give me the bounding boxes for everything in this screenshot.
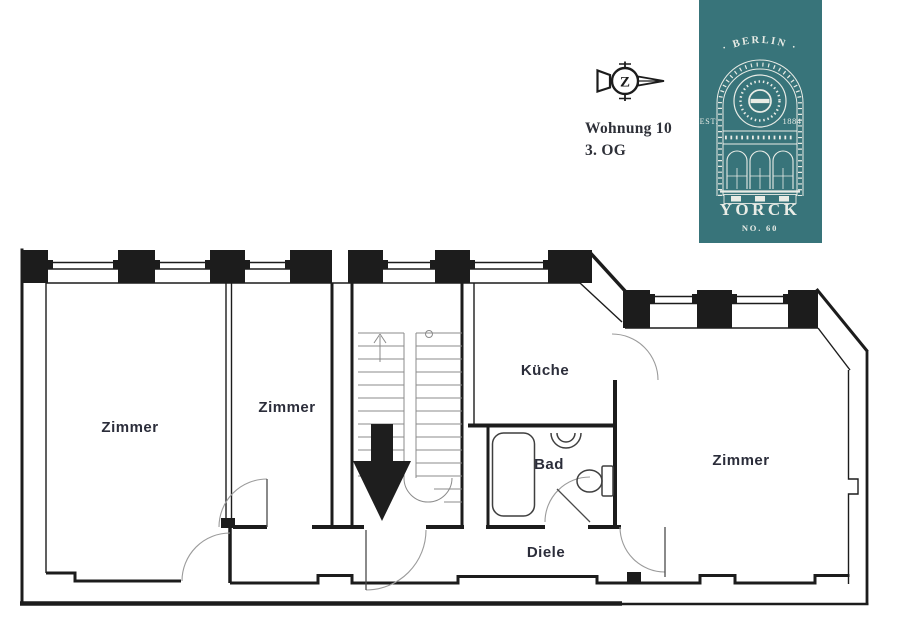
floor-label: 3. OG — [585, 142, 626, 159]
brand-badge: · BERLIN · EST. 1884 YORCK NO. 60 — [699, 0, 822, 243]
badge-year: 1884 — [783, 116, 802, 126]
floor-plan: Zimmer Zimmer Küche Bad Zimmer Diele — [20, 249, 869, 606]
down-arrow-icon — [353, 424, 411, 521]
floorplan-canvas: Z Wohnung 10 3. OG · BERLIN · — [0, 0, 900, 635]
unit-label: Wohnung 10 — [585, 120, 672, 137]
stair-turn-curve — [404, 478, 452, 502]
compass-icon: Z — [598, 62, 665, 102]
stair-up-arrow-icon — [374, 334, 386, 362]
page: Z Wohnung 10 3. OG · BERLIN · — [0, 0, 900, 635]
room-label-zimmer-right: Zimmer — [712, 452, 769, 469]
badge-name: YORCK — [720, 200, 801, 219]
room-label-zimmer-left: Zimmer — [101, 419, 158, 436]
room-label-diele: Diele — [527, 544, 565, 561]
compass-letter: Z — [620, 75, 630, 91]
bathroom-fixtures — [493, 433, 614, 516]
room-label-bad: Bad — [534, 456, 564, 473]
header-labels: Wohnung 10 3. OG — [585, 120, 672, 159]
stair-divider — [404, 333, 416, 478]
badge-number: NO. 60 — [742, 223, 778, 233]
bathtub — [493, 433, 535, 516]
door-arc-kueche — [612, 334, 658, 380]
door-stop-nub — [627, 572, 641, 583]
sink — [551, 433, 581, 448]
room-label-kueche: Küche — [521, 362, 569, 379]
wall-piers — [22, 250, 818, 328]
badge-est: EST. — [700, 117, 719, 126]
windows — [48, 260, 788, 304]
staircase — [353, 331, 462, 522]
toilet — [577, 466, 613, 496]
door-arc-zimmer-right — [620, 527, 665, 572]
room-labels: Zimmer Zimmer Küche Bad Zimmer Diele — [101, 362, 769, 561]
door-arc-zimmer-left — [182, 533, 230, 581]
compass-tail — [598, 71, 611, 92]
room-label-zimmer-middle: Zimmer — [258, 399, 315, 416]
door-arc-entrance — [366, 530, 426, 590]
stair-post — [426, 331, 433, 338]
